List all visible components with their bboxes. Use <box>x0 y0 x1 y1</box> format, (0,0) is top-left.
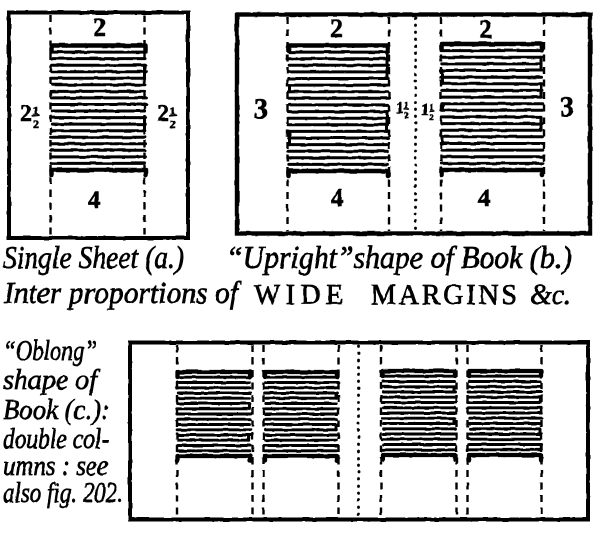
svg-text:MARGINS: MARGINS <box>371 280 517 311</box>
svg-text:2: 2 <box>33 117 39 131</box>
svg-text:2: 2 <box>20 101 32 127</box>
svg-text:2: 2 <box>430 113 434 122</box>
svg-text:Single Sheet (a.): Single Sheet (a.) <box>3 239 184 275</box>
svg-text:“Oblong”: “Oblong” <box>3 335 97 367</box>
svg-text:4: 4 <box>88 187 101 214</box>
svg-text:also fig. 202.: also fig. 202. <box>3 477 123 509</box>
svg-text:4: 4 <box>331 185 344 212</box>
svg-text:&c.: &c. <box>530 278 571 311</box>
svg-text:3: 3 <box>254 94 268 125</box>
svg-text:2: 2 <box>330 14 343 43</box>
svg-text:2: 2 <box>93 13 106 42</box>
svg-text:2: 2 <box>170 117 176 131</box>
svg-text:2: 2 <box>157 101 169 127</box>
svg-text:2: 2 <box>405 111 409 120</box>
svg-text:1: 1 <box>396 98 405 117</box>
svg-text:WIDE: WIDE <box>254 280 343 311</box>
svg-text:“Upright”shape of Book (b.): “Upright”shape of Book (b.) <box>226 239 572 275</box>
svg-text:3: 3 <box>560 92 574 123</box>
svg-text:shape of: shape of <box>3 364 101 396</box>
svg-text:4: 4 <box>478 185 491 212</box>
svg-text:Inter proportions of: Inter proportions of <box>3 275 242 310</box>
svg-text:Book (c.):: Book (c.): <box>3 394 110 426</box>
svg-text:2: 2 <box>479 15 492 44</box>
svg-text:1: 1 <box>421 100 430 119</box>
